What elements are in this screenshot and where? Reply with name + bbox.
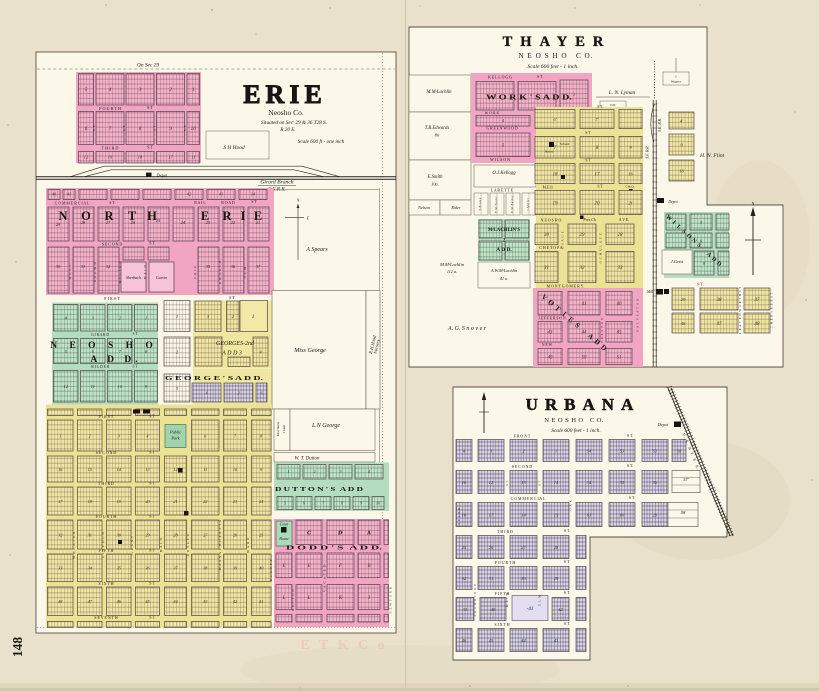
svg-text:31: 31 <box>88 532 92 537</box>
svg-text:10: 10 <box>376 500 380 505</box>
svg-text:W A R D: W A R D <box>246 537 250 553</box>
svg-text:E R I E: E R I E <box>193 265 197 279</box>
svg-text:6: 6 <box>85 126 88 132</box>
svg-text:Depot: Depot <box>157 173 168 178</box>
svg-text:Nelson: Nelson <box>417 205 430 210</box>
svg-text:J.Grist: J.Grist <box>671 259 684 264</box>
svg-text:34: 34 <box>251 192 255 197</box>
svg-text:On Sec 29: On Sec 29 <box>137 63 159 69</box>
svg-text:M.MᶜLachlin: M.MᶜLachlin <box>439 262 465 267</box>
svg-text:S T: S T <box>183 124 187 131</box>
svg-text:3: 3 <box>340 469 342 474</box>
svg-text:4: 4 <box>109 86 112 93</box>
svg-text:R.20 E.: R.20 E. <box>279 127 295 133</box>
svg-text:Neosho Co.: Neosho Co. <box>268 108 304 117</box>
svg-text:S T.: S T. <box>564 622 570 626</box>
svg-text:A D D.: A D D. <box>90 355 141 365</box>
svg-text:S.F. R.R.: S.F. R.R. <box>646 145 650 158</box>
svg-text:12: 12 <box>63 384 68 389</box>
svg-text:Merchants: Merchants <box>276 421 280 437</box>
svg-text:W. T. Dutton: W. T. Dutton <box>294 457 320 462</box>
svg-text:F I R S T: F I R S T <box>104 296 120 301</box>
svg-text:Miss George: Miss George <box>293 347 326 354</box>
svg-text:T R O B R I D G E: T R O B R I D G E <box>473 583 477 616</box>
svg-text:11: 11 <box>203 467 207 472</box>
svg-text:L. N. Lyman: L. N. Lyman <box>608 90 636 96</box>
svg-text:N: N <box>752 202 755 206</box>
svg-text:43: 43 <box>548 331 553 336</box>
svg-text:8: 8 <box>341 500 343 505</box>
svg-text:Situated on Secʹ 29 & 36 T28 S: Situated on Secʹ 29 & 36 T28 S. <box>261 119 327 126</box>
svg-text:33: 33 <box>58 566 62 571</box>
svg-text:58: 58 <box>681 510 686 515</box>
svg-text:T.B.Edwards: T.B.Edwards <box>425 126 450 131</box>
svg-text:3: 3 <box>118 433 120 438</box>
svg-text:Scale 600 feet - 1 inch.: Scale 600 feet - 1 inch. <box>527 63 578 70</box>
svg-text:112 a.: 112 a. <box>447 269 457 274</box>
svg-text:S.K. R.R.: S.K. R.R. <box>658 118 662 132</box>
svg-text:S T: S T <box>585 131 591 135</box>
svg-text:N: N <box>296 199 300 203</box>
svg-text:43: 43 <box>219 192 223 197</box>
svg-text:O S A G E: O S A G E <box>561 231 565 249</box>
svg-text:50: 50 <box>582 355 587 360</box>
svg-text:10: 10 <box>117 384 122 389</box>
svg-text:B U T T O N: B U T T O N <box>291 589 295 612</box>
svg-text:ERIE: ERIE <box>243 80 327 109</box>
svg-text:16: 16 <box>628 171 633 176</box>
svg-text:-41: -41 <box>527 607 534 612</box>
svg-text:1: 1 <box>252 314 255 320</box>
svg-text:S E C O N D: S E C O N D <box>512 465 533 469</box>
svg-text:E L M: E L M <box>243 266 247 277</box>
svg-text:6: 6 <box>303 500 305 505</box>
svg-text:S T.: S T. <box>564 591 570 595</box>
svg-text:G A L V E S T O N: G A L V E S T O N <box>636 298 640 332</box>
svg-text:S E C O N D: S E C O N D <box>96 451 117 455</box>
svg-text:1: 1 <box>288 469 290 474</box>
svg-text:P R E S T O N: P R E S T O N <box>600 317 604 343</box>
svg-text:O.J.Kellogg: O.J.Kellogg <box>492 171 516 176</box>
svg-text:S T.: S T. <box>564 529 570 533</box>
svg-text:8: 8 <box>139 126 142 132</box>
svg-text:2: 2 <box>314 469 316 474</box>
svg-text:4: 4 <box>205 390 207 395</box>
svg-text:4: 4 <box>502 118 504 123</box>
svg-text:Cth.O.: Cth.O. <box>625 185 634 189</box>
svg-text:42: 42 <box>187 192 191 197</box>
svg-text:L: L <box>307 596 311 601</box>
svg-text:41 a.: 41 a. <box>500 276 508 281</box>
svg-text:5: 5 <box>85 87 88 93</box>
svg-text:148: 148 <box>10 637 25 658</box>
svg-text:13: 13 <box>145 467 149 472</box>
svg-text:1: 1 <box>176 314 178 319</box>
svg-text:B R O W N: B R O W N <box>93 262 97 282</box>
svg-text:2: 2 <box>169 87 172 93</box>
svg-text:N E W: N E W <box>542 343 553 347</box>
svg-text:30: 30 <box>544 233 550 238</box>
svg-text:33: 33 <box>618 266 624 271</box>
svg-text:S T: S T <box>153 124 157 131</box>
svg-text:O C M U L G E E: O C M U L G E E <box>599 233 603 264</box>
svg-text:51: 51 <box>653 448 657 453</box>
svg-text:I: I <box>241 209 246 223</box>
svg-text:21: 21 <box>256 220 260 225</box>
svg-text:D: D <box>337 531 342 537</box>
svg-text:T H I R D: T H I R D <box>497 530 513 534</box>
svg-text:N E O S H O: N E O S H O <box>50 341 158 351</box>
svg-text:L I N C O L N: L I N C O L N <box>101 532 105 558</box>
svg-text:H. N. Flint: H. N. Flint <box>699 153 725 159</box>
svg-text:1: 1 <box>573 92 575 97</box>
svg-text:S T.: S T. <box>537 75 543 79</box>
svg-text:S T.: S T. <box>629 496 635 500</box>
svg-text:10a.: 10a. <box>431 182 439 187</box>
svg-text:28: 28 <box>618 233 624 238</box>
svg-text:2: 2 <box>237 390 239 395</box>
svg-text:Scale 600 ft - one inch: Scale 600 ft - one inch <box>298 138 345 145</box>
svg-text:A V E.: A V E. <box>619 218 630 222</box>
svg-text:43: 43 <box>203 599 207 604</box>
svg-text:M A I N: M A I N <box>143 265 147 280</box>
svg-text:T Y L E R: T Y L E R <box>457 507 461 525</box>
svg-text:S T: S T <box>585 159 591 163</box>
svg-text:41: 41 <box>259 599 263 604</box>
svg-text:I.Miller: I.Miller <box>527 198 530 211</box>
svg-text:37: 37 <box>755 298 761 303</box>
svg-text:URBANA: URBANA <box>526 395 641 414</box>
svg-text:O A K: O A K <box>569 499 573 510</box>
svg-text:Court: Court <box>280 523 289 527</box>
svg-text:E T K C o: E T K C o <box>300 638 387 653</box>
svg-text:10: 10 <box>191 126 197 132</box>
svg-text:M A I N: M A I N <box>159 538 163 553</box>
svg-text:21: 21 <box>173 499 177 504</box>
svg-text:Depot: Depot <box>667 200 678 204</box>
svg-text:32: 32 <box>580 266 586 271</box>
svg-text:Park: Park <box>170 436 179 441</box>
svg-text:S T: S T <box>149 582 155 586</box>
svg-text:S H Hood: S H Hood <box>223 145 245 151</box>
svg-text:L: L <box>282 596 286 601</box>
svg-text:A.W.MᶜLachlin: A.W.MᶜLachlin <box>490 268 518 273</box>
svg-text:S T: S T <box>132 332 138 336</box>
svg-text:31: 31 <box>489 576 493 581</box>
svg-text:20: 20 <box>595 201 601 206</box>
svg-text:F I R S T: F I R S T <box>99 415 114 419</box>
svg-text:40: 40 <box>617 302 622 307</box>
svg-text:61: 61 <box>587 512 591 517</box>
svg-text:R O A D: R O A D <box>221 201 235 205</box>
svg-text:49: 49 <box>548 355 553 360</box>
svg-text:S T: S T <box>597 185 603 189</box>
svg-text:S I X T H: S I X T H <box>494 623 509 627</box>
svg-text:School: School <box>560 142 569 146</box>
svg-text:S T: S T <box>697 282 703 286</box>
svg-text:S T.: S T. <box>597 105 603 109</box>
svg-text:G R E E N W O O D: G R E E N W O O D <box>486 127 517 131</box>
svg-text:45: 45 <box>617 331 622 336</box>
svg-text:1: 1 <box>192 87 195 93</box>
svg-text:50: 50 <box>677 448 681 453</box>
svg-text:11: 11 <box>91 384 95 389</box>
svg-text:L E A V E N W O R T H S T: L E A V E N W O R T H S T <box>739 286 742 333</box>
svg-text:E.M.Bailey: E.M.Bailey <box>511 195 514 213</box>
svg-text:S T: S T <box>147 105 153 110</box>
svg-text:S T.: S T. <box>564 560 570 564</box>
svg-text:V A C A T E D: V A C A T E D <box>322 564 326 592</box>
svg-text:S T.: S T. <box>627 434 633 438</box>
svg-text:B O R D E R: B O R D E R <box>269 559 273 582</box>
svg-text:M A S S A C H U S E T T S: M A S S A C H U S E T T S <box>218 520 222 571</box>
svg-text:L A B E T T E: L A B E T T E <box>491 188 514 192</box>
svg-text:44: 44 <box>582 331 587 336</box>
svg-text:5: 5 <box>284 500 286 505</box>
svg-text:House: House <box>278 537 289 541</box>
svg-text:S T: S T <box>149 415 155 419</box>
svg-text:E.Smith: E.Smith <box>426 175 443 180</box>
svg-text:T H I R D: T H I R D <box>98 482 114 486</box>
svg-text:W I L S O N: W I L S O N <box>490 158 510 162</box>
svg-text:R A I L: R A I L <box>194 201 206 205</box>
svg-text:2: 2 <box>503 238 506 244</box>
svg-text:C O M M E R C I A L: C O M M E R C I A L <box>511 497 546 501</box>
svg-text:38: 38 <box>717 298 723 303</box>
svg-text:4: 4 <box>368 469 370 474</box>
svg-text:S T: S T <box>122 124 126 131</box>
svg-text:4ʹ: 4ʹ <box>680 118 683 123</box>
svg-text:47: 47 <box>717 322 723 327</box>
svg-text:C H E T O P A: C H E T O P A <box>539 246 562 250</box>
svg-text:W H E A T E R: W H E A T E R <box>72 531 76 559</box>
svg-text:4: 4 <box>259 349 261 354</box>
svg-text:A: A <box>366 531 371 537</box>
svg-text:48: 48 <box>755 322 761 327</box>
svg-text:S T.: S T. <box>627 464 633 468</box>
svg-text:S I X T H: S I X T H <box>98 582 113 586</box>
svg-text:T.Brown: T.Brown <box>479 197 482 210</box>
svg-text:F O U R T H: F O U R T H <box>96 515 116 519</box>
svg-text:16: 16 <box>679 168 684 173</box>
svg-text:1: 1 <box>145 316 147 321</box>
svg-text:N E W Y O R K: N E W Y O R K <box>389 586 393 614</box>
svg-text:GEORGES-2nd: GEORGES-2nd <box>216 341 255 347</box>
svg-text:E: E <box>306 564 310 569</box>
svg-text:A D D 3: A D D 3 <box>221 351 242 357</box>
svg-text:S T: S T <box>251 200 257 204</box>
svg-text:S E C O N D: S E C O N D <box>102 242 123 246</box>
svg-text:J.: J. <box>675 75 678 79</box>
svg-text:S T: S T <box>92 124 96 131</box>
svg-text:29: 29 <box>580 233 586 238</box>
svg-text:D O D D ' S A D D.: D O D D ' S A D D. <box>286 545 383 552</box>
svg-text:41: 41 <box>582 302 587 307</box>
svg-text:L.N George: L.N George <box>311 423 340 429</box>
svg-text:C H E R O K E E S T: C H E R O K E E S T <box>771 292 774 328</box>
svg-text:17: 17 <box>595 172 601 177</box>
svg-text:Depot: Depot <box>657 422 670 427</box>
svg-text:31: 31 <box>81 264 85 269</box>
svg-text:G E O R G E ' S A D D.: G E O R G E ' S A D D. <box>165 376 264 382</box>
svg-text:Pres.Ch.: Pres.Ch. <box>582 218 596 222</box>
svg-text:1: 1 <box>555 448 557 453</box>
svg-text:A. G. S n o v e r: A. G. S n o v e r <box>447 326 487 332</box>
svg-text:M A I N: M A I N <box>505 593 509 608</box>
svg-text:41: 41 <box>67 192 71 197</box>
svg-text:F O U R T H: F O U R T H <box>495 561 515 565</box>
svg-text:3: 3 <box>139 87 142 93</box>
svg-text:MᶜLACHLIN'S: MᶜLACHLIN'S <box>488 228 520 233</box>
svg-text:F.M.: F.M. <box>609 103 616 107</box>
svg-text:51: 51 <box>617 355 622 360</box>
svg-text:Mill: Mill <box>646 290 653 294</box>
svg-text:House: House <box>544 150 554 154</box>
svg-text:G R A N T: G R A N T <box>130 535 134 554</box>
svg-text:31: 31 <box>544 266 549 271</box>
svg-text:W I L D E R: W I L D E R <box>91 365 110 369</box>
svg-text:K E L L O G G: K E L L O G G <box>488 76 512 80</box>
svg-text:S T: S T <box>149 616 155 620</box>
svg-text:Sherbach: Sherbach <box>126 275 141 280</box>
svg-text:A D D.: A D D. <box>496 247 512 253</box>
svg-text:19: 19 <box>553 201 559 206</box>
svg-text:E L M: E L M <box>538 594 542 605</box>
svg-text:A Spears: A Spears <box>305 247 328 253</box>
svg-text:N E O S H O: N E O S H O <box>541 219 562 223</box>
svg-text:23: 23 <box>233 499 237 504</box>
svg-text:Wagner: Wagner <box>671 80 682 84</box>
svg-text:M.E.O.: M.E.O. <box>543 185 554 189</box>
svg-text:M.MᶜLachlin: M.MᶜLachlin <box>425 90 452 95</box>
svg-text:C O M M E R C I A L: C O M M E R C I A L <box>55 202 90 206</box>
svg-text:T H I R D: T H I R D <box>102 146 119 151</box>
svg-text:18: 18 <box>553 172 559 177</box>
svg-text:J Hall: J Hall <box>282 425 286 433</box>
svg-text:S T: S T <box>149 242 155 246</box>
svg-text:Public: Public <box>169 430 181 435</box>
svg-text:M O N T G O M E R Y: M O N T G O M E R Y <box>547 284 584 288</box>
svg-text:B: B <box>367 564 370 569</box>
svg-text:F R O N T: F R O N T <box>514 435 531 439</box>
svg-text:46: 46 <box>681 321 686 326</box>
svg-text:N E O S H O C O.: N E O S H O C O. <box>544 417 604 424</box>
svg-text:Girard Branch: Girard Branch <box>260 180 293 186</box>
svg-text:B U T L E R: B U T L E R <box>186 533 190 556</box>
svg-text:S T: S T <box>539 480 542 486</box>
svg-text:Garvin: Garvin <box>156 275 167 280</box>
svg-text:E: E <box>281 564 285 569</box>
svg-text:Rider: Rider <box>450 205 461 210</box>
svg-text:9: 9 <box>360 500 362 505</box>
svg-text:S T: S T <box>132 365 138 369</box>
svg-text:K: K <box>338 596 343 601</box>
svg-text:M I L T O N: M I L T O N <box>118 261 122 284</box>
svg-text:7: 7 <box>109 126 112 132</box>
svg-text:S T: S T <box>147 145 153 150</box>
svg-text:S T: S T <box>229 295 235 300</box>
svg-text:THAYER: THAYER <box>503 34 612 50</box>
svg-text:S T: S T <box>506 480 509 486</box>
svg-text:Scale 600 feet - 1 inch.: Scale 600 feet - 1 inch. <box>551 427 600 434</box>
svg-text:S T: S T <box>109 201 115 205</box>
svg-text:1: 1 <box>59 433 61 438</box>
svg-text:C H U R C H: C H U R C H <box>218 260 222 284</box>
svg-text:29: 29 <box>681 297 686 302</box>
svg-text:N: N <box>58 209 67 223</box>
svg-text:F.M.Foster: F.M.Foster <box>495 195 498 212</box>
svg-text:40: 40 <box>52 192 56 197</box>
svg-text:S E V E N T H: S E V E N T H <box>94 616 117 620</box>
svg-text:D U T T O N ' S A D D: D U T T O N ' S A D D <box>275 486 363 493</box>
svg-text:21: 21 <box>628 200 633 205</box>
svg-text:11: 11 <box>191 154 195 159</box>
svg-text:G I R A R D: G I R A R D <box>91 333 109 337</box>
svg-text:C: C <box>307 531 311 537</box>
svg-text:W O R K ' S A D D.: W O R K ' S A D D. <box>486 93 572 102</box>
svg-text:9: 9 <box>169 126 172 132</box>
svg-text:N E O S H O C O.: N E O S H O C O. <box>518 52 593 60</box>
svg-text:W E S T: W E S T <box>68 264 72 279</box>
svg-text:F O U R T H: F O U R T H <box>99 106 121 111</box>
